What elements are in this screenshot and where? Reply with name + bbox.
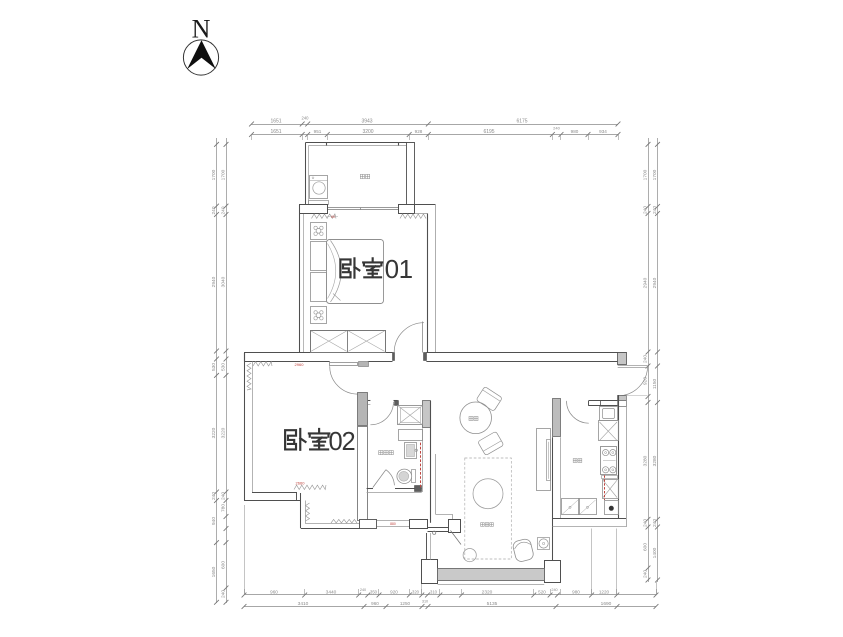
svg-text:1700: 1700	[642, 169, 648, 180]
svg-text:3200: 3200	[362, 129, 373, 135]
svg-text:960: 960	[270, 590, 278, 595]
svg-text:2660: 2660	[296, 481, 306, 486]
svg-text:1150: 1150	[652, 379, 658, 390]
svg-text:1651: 1651	[270, 119, 281, 125]
svg-text:3280: 3280	[652, 455, 658, 466]
svg-text:310: 310	[422, 600, 428, 604]
svg-text:600: 600	[642, 543, 648, 551]
svg-text:951: 951	[314, 129, 322, 134]
svg-text:3440: 3440	[326, 590, 337, 596]
svg-text:3410: 3410	[298, 601, 309, 607]
svg-text:1700: 1700	[221, 169, 227, 180]
svg-text:350: 350	[370, 590, 378, 595]
svg-text:02: 02	[329, 428, 355, 456]
svg-text:780: 780	[221, 504, 227, 512]
svg-text:928: 928	[415, 129, 423, 134]
svg-text:920: 920	[390, 590, 398, 595]
svg-text:320: 320	[412, 590, 420, 595]
svg-text:240: 240	[221, 492, 227, 500]
svg-text:5135: 5135	[487, 601, 498, 607]
svg-text:6175: 6175	[516, 119, 527, 125]
svg-text:880: 880	[390, 522, 396, 526]
svg-text:3040: 3040	[221, 276, 227, 287]
svg-text:1650: 1650	[211, 566, 217, 577]
svg-text:240: 240	[211, 206, 217, 214]
svg-text:1400: 1400	[652, 547, 658, 558]
svg-text:960: 960	[371, 601, 379, 606]
svg-text:240: 240	[221, 590, 227, 598]
svg-text:3220: 3220	[221, 427, 227, 438]
svg-text:2940: 2940	[642, 277, 648, 288]
svg-text:240: 240	[551, 588, 557, 592]
svg-text:2940: 2940	[652, 277, 658, 288]
svg-text:310: 310	[430, 590, 438, 595]
svg-text:240: 240	[553, 126, 560, 131]
svg-text:240: 240	[360, 588, 366, 592]
svg-text:1250: 1250	[400, 601, 411, 606]
svg-text:980: 980	[571, 129, 579, 134]
svg-text:2940: 2940	[211, 276, 217, 287]
svg-text:60: 60	[331, 215, 335, 219]
svg-text:01: 01	[385, 254, 413, 284]
svg-text:530: 530	[221, 363, 227, 371]
svg-text:240: 240	[652, 519, 658, 527]
svg-text:940: 940	[211, 517, 217, 525]
svg-text:980: 980	[572, 590, 580, 595]
svg-text:N: N	[192, 15, 211, 44]
svg-text:240: 240	[211, 492, 217, 500]
svg-text:1700: 1700	[211, 169, 217, 180]
svg-text:2320: 2320	[482, 590, 493, 596]
svg-text:240: 240	[642, 570, 648, 578]
svg-text:1700: 1700	[652, 169, 658, 180]
svg-text:2960: 2960	[295, 362, 305, 367]
svg-text:240: 240	[642, 519, 648, 527]
svg-text:1220: 1220	[599, 590, 610, 595]
svg-text:1651: 1651	[270, 129, 281, 135]
svg-text:520: 520	[538, 590, 546, 595]
svg-text:6195: 6195	[483, 129, 494, 135]
svg-text:1690: 1690	[601, 601, 612, 607]
svg-text:240: 240	[221, 206, 227, 214]
svg-text:3280: 3280	[642, 455, 648, 466]
svg-text:240: 240	[302, 116, 310, 121]
svg-text:240: 240	[652, 206, 658, 214]
svg-text:600: 600	[221, 561, 227, 569]
svg-text:3220: 3220	[211, 427, 217, 438]
svg-text:240: 240	[642, 206, 648, 214]
svg-text:530: 530	[211, 363, 217, 371]
svg-text:934: 934	[599, 129, 607, 134]
svg-text:3943: 3943	[361, 119, 372, 125]
svg-text:240: 240	[642, 355, 648, 363]
